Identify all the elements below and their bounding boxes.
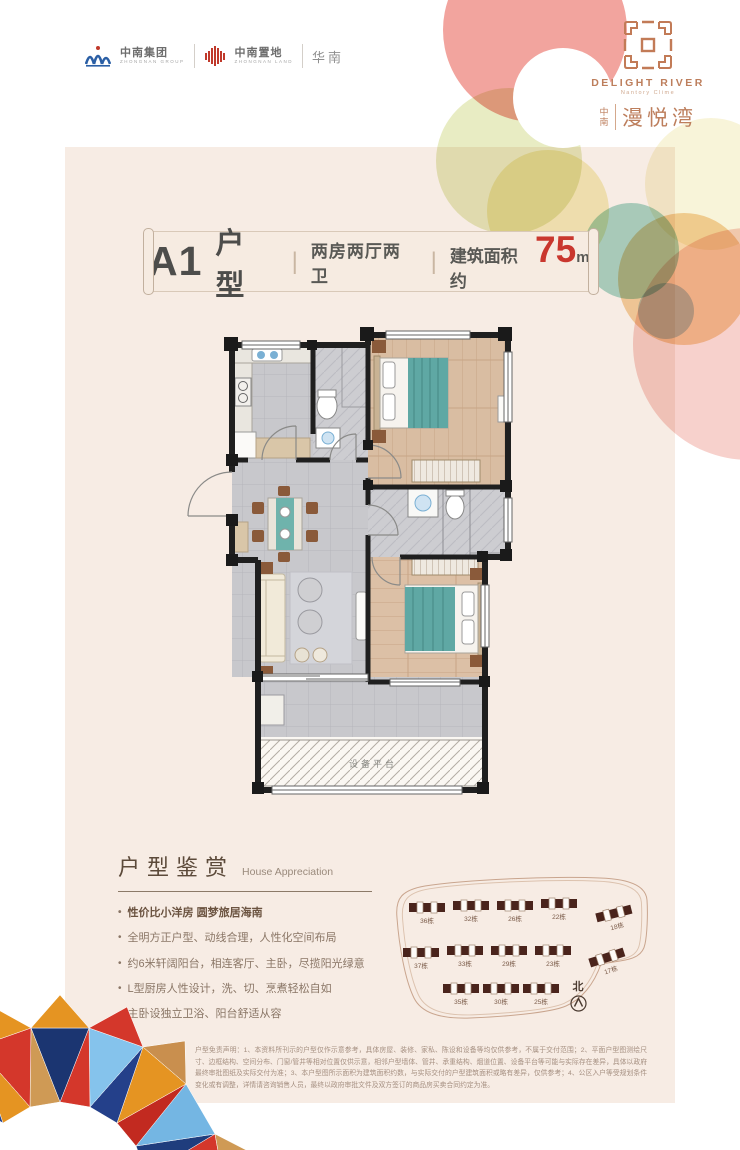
unit-code: A1 <box>148 238 202 285</box>
bullet-dot: • <box>118 957 122 971</box>
logo-divider-2 <box>302 44 303 68</box>
building-label: 17栋 <box>603 963 619 976</box>
unit-type-label: 户型 <box>215 220 278 304</box>
logo-cn-divider <box>615 104 616 130</box>
site-plan: 36栋 32栋 26栋 22栋 18栋 37栋 33栋 29栋 23栋 17栋 … <box>388 872 650 1022</box>
bullet-dot: • <box>118 906 122 920</box>
disclaimer-text: 户型免责声明：1、本资料所刊示的户型仅作示意参考，具体房屋、装修、家私、陈设和设… <box>195 1045 647 1091</box>
delight-river-logo: DELIGHT RIVER Nantory Clime 中南 漫悦湾 <box>585 18 711 132</box>
appreciation-heading-en: House Appreciation <box>242 866 333 878</box>
land-subtext: ZHONGNAN LAND <box>235 60 294 65</box>
header-logos: 中南集团 ZHONGNAN GROUP 中南置地 ZHONGNAN LAND 华… <box>85 40 344 72</box>
area-value: 75 <box>535 231 576 268</box>
logo-cn-prefix: 中南 <box>599 107 609 128</box>
group-name: 中南集团 <box>120 47 185 59</box>
building-label: 25栋 <box>534 997 548 1006</box>
logo-english-name: DELIGHT RIVER <box>585 77 711 89</box>
title-separator: | <box>292 248 298 276</box>
bullet-dot: • <box>118 931 122 945</box>
bullet-item: •性价比小洋房 圆梦旅居海南 <box>118 906 398 920</box>
unit-title-banner: A1 户型 | 两房两厅两卫 | 建筑面积约 75 m2 <box>148 231 594 292</box>
appreciation-heading: 户型鉴赏 <box>118 850 234 882</box>
land-name: 中南置地 <box>235 47 294 59</box>
mosaic-ring-decoration <box>0 990 260 1150</box>
logo-cn-name: 漫悦湾 <box>622 102 697 132</box>
building-label: 30栋 <box>494 997 508 1006</box>
building-label: 26栋 <box>508 914 522 923</box>
unit-area: 建筑面积约 75 m2 <box>450 231 594 292</box>
north-arrow-icon <box>570 995 587 1012</box>
building-label: 22栋 <box>552 912 566 921</box>
north-indicator: 北 <box>566 978 590 1012</box>
building-label: 36栋 <box>420 916 434 925</box>
logo-english-subtitle: Nantory Clime <box>585 90 711 96</box>
unit-layout: 两房两厅两卫 <box>311 237 418 287</box>
building-label: 18栋 <box>609 920 625 932</box>
appreciation-header: 户型鉴赏 House Appreciation <box>118 850 372 892</box>
building-label: 23栋 <box>546 959 560 968</box>
title-separator-2: | <box>431 248 437 276</box>
north-label: 北 <box>566 978 590 994</box>
site-buildings: 36栋 32栋 26栋 22栋 18栋 37栋 33栋 29栋 23栋 17栋 … <box>403 898 636 1006</box>
building-label: 33栋 <box>458 959 472 968</box>
zhongnan-group-icon <box>85 44 111 68</box>
floor-plan: 设备平台 <box>180 320 562 812</box>
area-unit: m2 <box>576 249 594 266</box>
building-label: 29栋 <box>502 959 516 968</box>
region-label: 华南 <box>312 47 344 66</box>
bullet-item: •全明方正户型、动线合理，人性化空间布局 <box>118 931 398 945</box>
building-label: 37栋 <box>414 961 428 970</box>
bullet-item: •约6米轩阔阳台，相连客厅、主卧，尽揽阳光绿意 <box>118 957 398 971</box>
lattice-icon <box>621 18 675 72</box>
logo-divider <box>194 44 195 68</box>
group-subtext: ZHONGNAN GROUP <box>120 60 185 65</box>
zhongnan-land-icon <box>204 44 226 68</box>
area-prefix: 建筑面积约 <box>450 242 533 292</box>
building-label: 35栋 <box>454 997 468 1006</box>
equipment-platform-label: 设备平台 <box>349 758 397 769</box>
building-label: 32栋 <box>464 914 478 923</box>
